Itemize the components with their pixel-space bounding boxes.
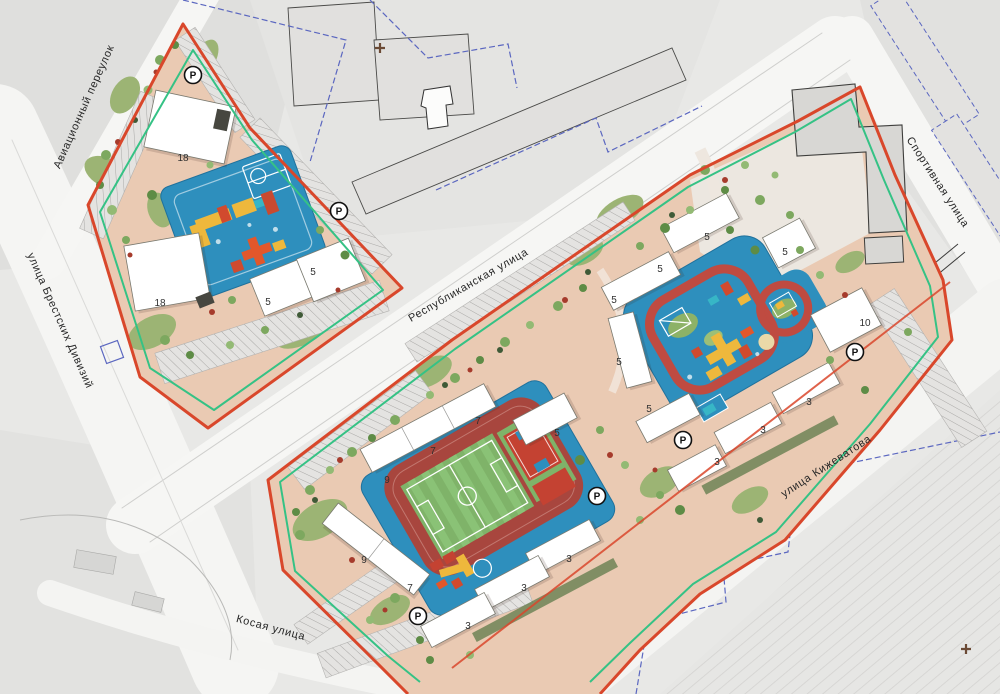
building-label: 5 [646,404,652,415]
parking-icon: P [847,344,864,361]
site-plan-map: P P P P P P 18 18 5 5 7 7 5 9 9 7 5 5 5 … [0,0,1000,694]
building-label: 9 [361,555,367,566]
parking-letter: P [594,492,601,503]
building-label: 3 [714,457,720,468]
building-label: 3 [566,554,572,565]
parking-letter: P [415,612,422,623]
parking-icon: P [589,488,606,505]
building-label: 5 [611,295,617,306]
building-label: 18 [177,153,189,164]
building-label: 5 [265,297,271,308]
parking-icon: P [675,432,692,449]
building-label: 9 [384,475,390,486]
parking-icon: P [185,67,202,84]
parking-icon: P [410,608,427,625]
parking-letter: P [336,207,343,218]
site-plan-canvas: P P P P P P 18 18 5 5 7 7 5 9 9 7 5 5 5 … [0,0,1000,694]
building-label: 3 [465,621,471,632]
building-label: 5 [310,267,316,278]
parking-letter: P [680,436,687,447]
building-label: 5 [782,247,788,258]
building-label: 7 [475,416,481,427]
building-label: 5 [657,264,663,275]
building-label: 3 [806,397,812,408]
parking-letter: P [852,348,859,359]
building-label: 7 [407,583,413,594]
building-label: 3 [521,583,527,594]
parking-icon: P [331,203,348,220]
building-label: 10 [859,318,871,329]
building-label: 5 [554,428,560,439]
building-label: 18 [154,298,166,309]
building-label: 5 [704,232,710,243]
building-label: 7 [430,446,436,457]
building-label: 3 [760,425,766,436]
parking-letter: P [190,71,197,82]
building-label: 5 [616,357,622,368]
